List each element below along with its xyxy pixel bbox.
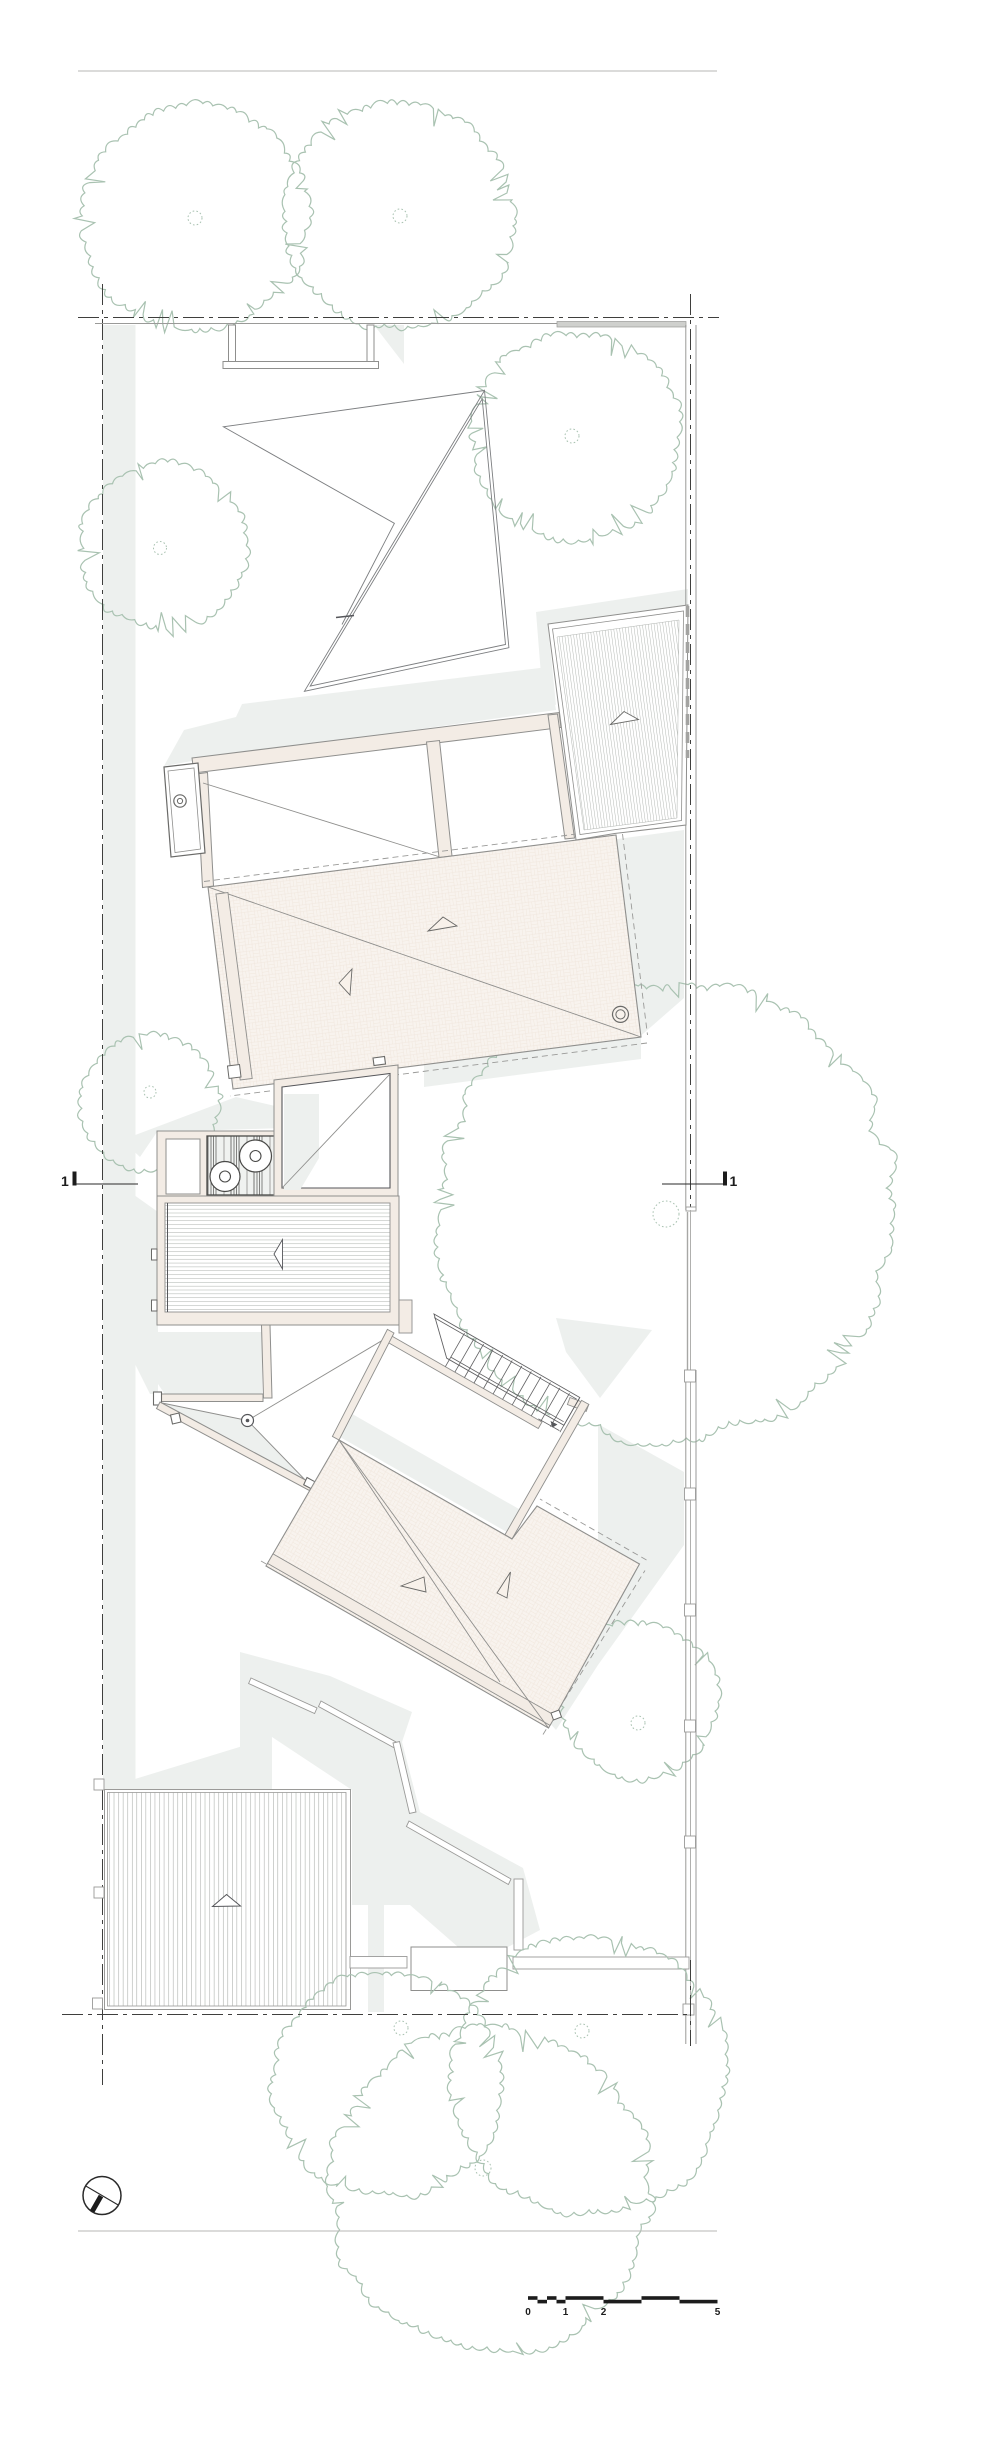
svg-text:1: 1 — [563, 2307, 569, 2318]
svg-text:1: 1 — [730, 1173, 738, 1189]
svg-text:1: 1 — [61, 1173, 69, 1189]
svg-text:0: 0 — [525, 2307, 531, 2318]
svg-text:5: 5 — [715, 2307, 721, 2318]
svg-text:2: 2 — [601, 2307, 607, 2318]
